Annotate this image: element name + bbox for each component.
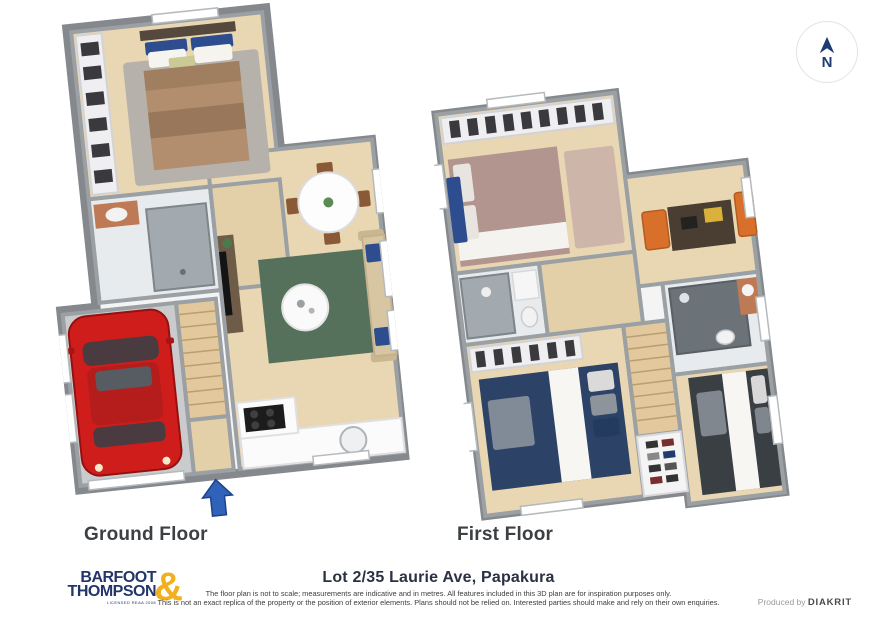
address-title: Lot 2/35 Laurie Ave, Papakura [0,569,877,587]
entry-nook-floor [188,416,233,474]
first-floor-plan [427,66,793,533]
ground-floor-label: Ground Floor [84,524,208,546]
bed-double [139,21,249,170]
navy-bed [479,363,632,491]
bedroom-3 [688,368,782,495]
producer-name: DIAKRIT [808,597,852,608]
shower [146,203,214,291]
ground-floor-drawing [26,0,414,534]
ground-floor-plan [26,0,414,534]
floorplan-sheet: N Ground Floor First Floor BARFOOT THOMP… [0,0,877,640]
hall-floor [539,252,643,335]
entry-arrow-icon [201,478,235,517]
first-floor-drawing [427,66,793,533]
orange-chair [642,210,670,251]
north-arrow-icon [816,36,838,56]
cooktop [243,404,285,432]
shower [460,273,515,338]
compass: N [796,21,858,83]
vanity [512,270,539,301]
compass-north-label: N [822,57,833,69]
disclaimer-line-2: This is not an exact replica of the prop… [0,598,877,607]
master-bedroom [439,97,630,267]
disclaimer-line-1: The floor plan is not to scale; measurem… [0,589,877,598]
produced-by-label: Produced by [758,597,808,607]
first-floor-label: First Floor [457,524,553,546]
produced-by: Produced by DIAKRIT [758,597,852,608]
charcoal-bed [688,368,782,495]
red-car [63,307,187,477]
desk [667,200,736,251]
master-bed [444,146,570,267]
garage [63,307,188,490]
shoe-closet [637,431,688,496]
